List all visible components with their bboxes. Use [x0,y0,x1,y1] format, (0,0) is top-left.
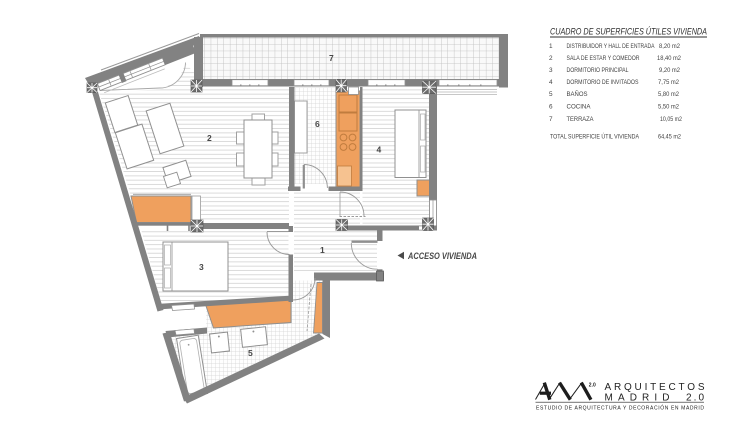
svg-text:5,50 m2: 5,50 m2 [658,104,679,111]
svg-text:5: 5 [248,348,253,358]
svg-text:3: 3 [549,67,553,74]
svg-text:ESTUDIO DE ARQUITECTURA Y DECO: ESTUDIO DE ARQUITECTURA Y DECORACIÓN EN … [536,404,704,411]
svg-text:2: 2 [207,133,212,143]
svg-text:ACCESO VIVIENDA: ACCESO VIVIENDA [407,251,477,262]
svg-text:TOTAL SUPERFICIE ÚTIL VIVIENDA: TOTAL SUPERFICIE ÚTIL VIVIENDA [550,132,640,141]
svg-text:TERRAZA: TERRAZA [567,116,595,123]
svg-text:COCINA: COCINA [567,104,592,111]
svg-text:4: 4 [549,79,553,86]
svg-text:9,20 m2: 9,20 m2 [659,67,680,74]
svg-text:1: 1 [549,43,553,50]
svg-text:1: 1 [320,245,325,255]
svg-text:3: 3 [199,262,204,272]
svg-text:2.0: 2.0 [589,382,596,388]
svg-text:18,40 m2: 18,40 m2 [657,55,681,62]
svg-text:7: 7 [329,53,334,63]
svg-text:DORMITORIO PRINCIPAL: DORMITORIO PRINCIPAL [567,67,629,74]
svg-text:2: 2 [549,55,553,62]
svg-text:7,75 m2: 7,75 m2 [658,79,679,86]
svg-text:6: 6 [549,104,553,111]
svg-text:8,20 m2: 8,20 m2 [659,43,680,50]
svg-text:CUADRO DE SUPERFICIES ÚTILES V: CUADRO DE SUPERFICIES ÚTILES VIVIENDA [550,27,707,37]
svg-text:BAÑOS: BAÑOS [567,89,588,98]
svg-text:ARQUITECTOS: ARQUITECTOS [605,382,705,393]
svg-text:DORMITORIO DE INVITADOS: DORMITORIO DE INVITADOS [567,79,639,86]
svg-text:4: 4 [377,145,382,155]
svg-text:6: 6 [315,119,320,129]
svg-text:7: 7 [549,116,553,123]
svg-text:5,80 m2: 5,80 m2 [658,91,679,98]
svg-text:5: 5 [549,91,553,98]
svg-text:SALA DE ESTAR Y COMEDOR: SALA DE ESTAR Y COMEDOR [567,55,640,62]
svg-text:DISTRIBUIDOR Y HALL DE ENTRADA: DISTRIBUIDOR Y HALL DE ENTRADA [567,43,656,50]
svg-text:10,05 m2: 10,05 m2 [660,116,682,123]
svg-text:64,45 m2: 64,45 m2 [658,134,681,141]
